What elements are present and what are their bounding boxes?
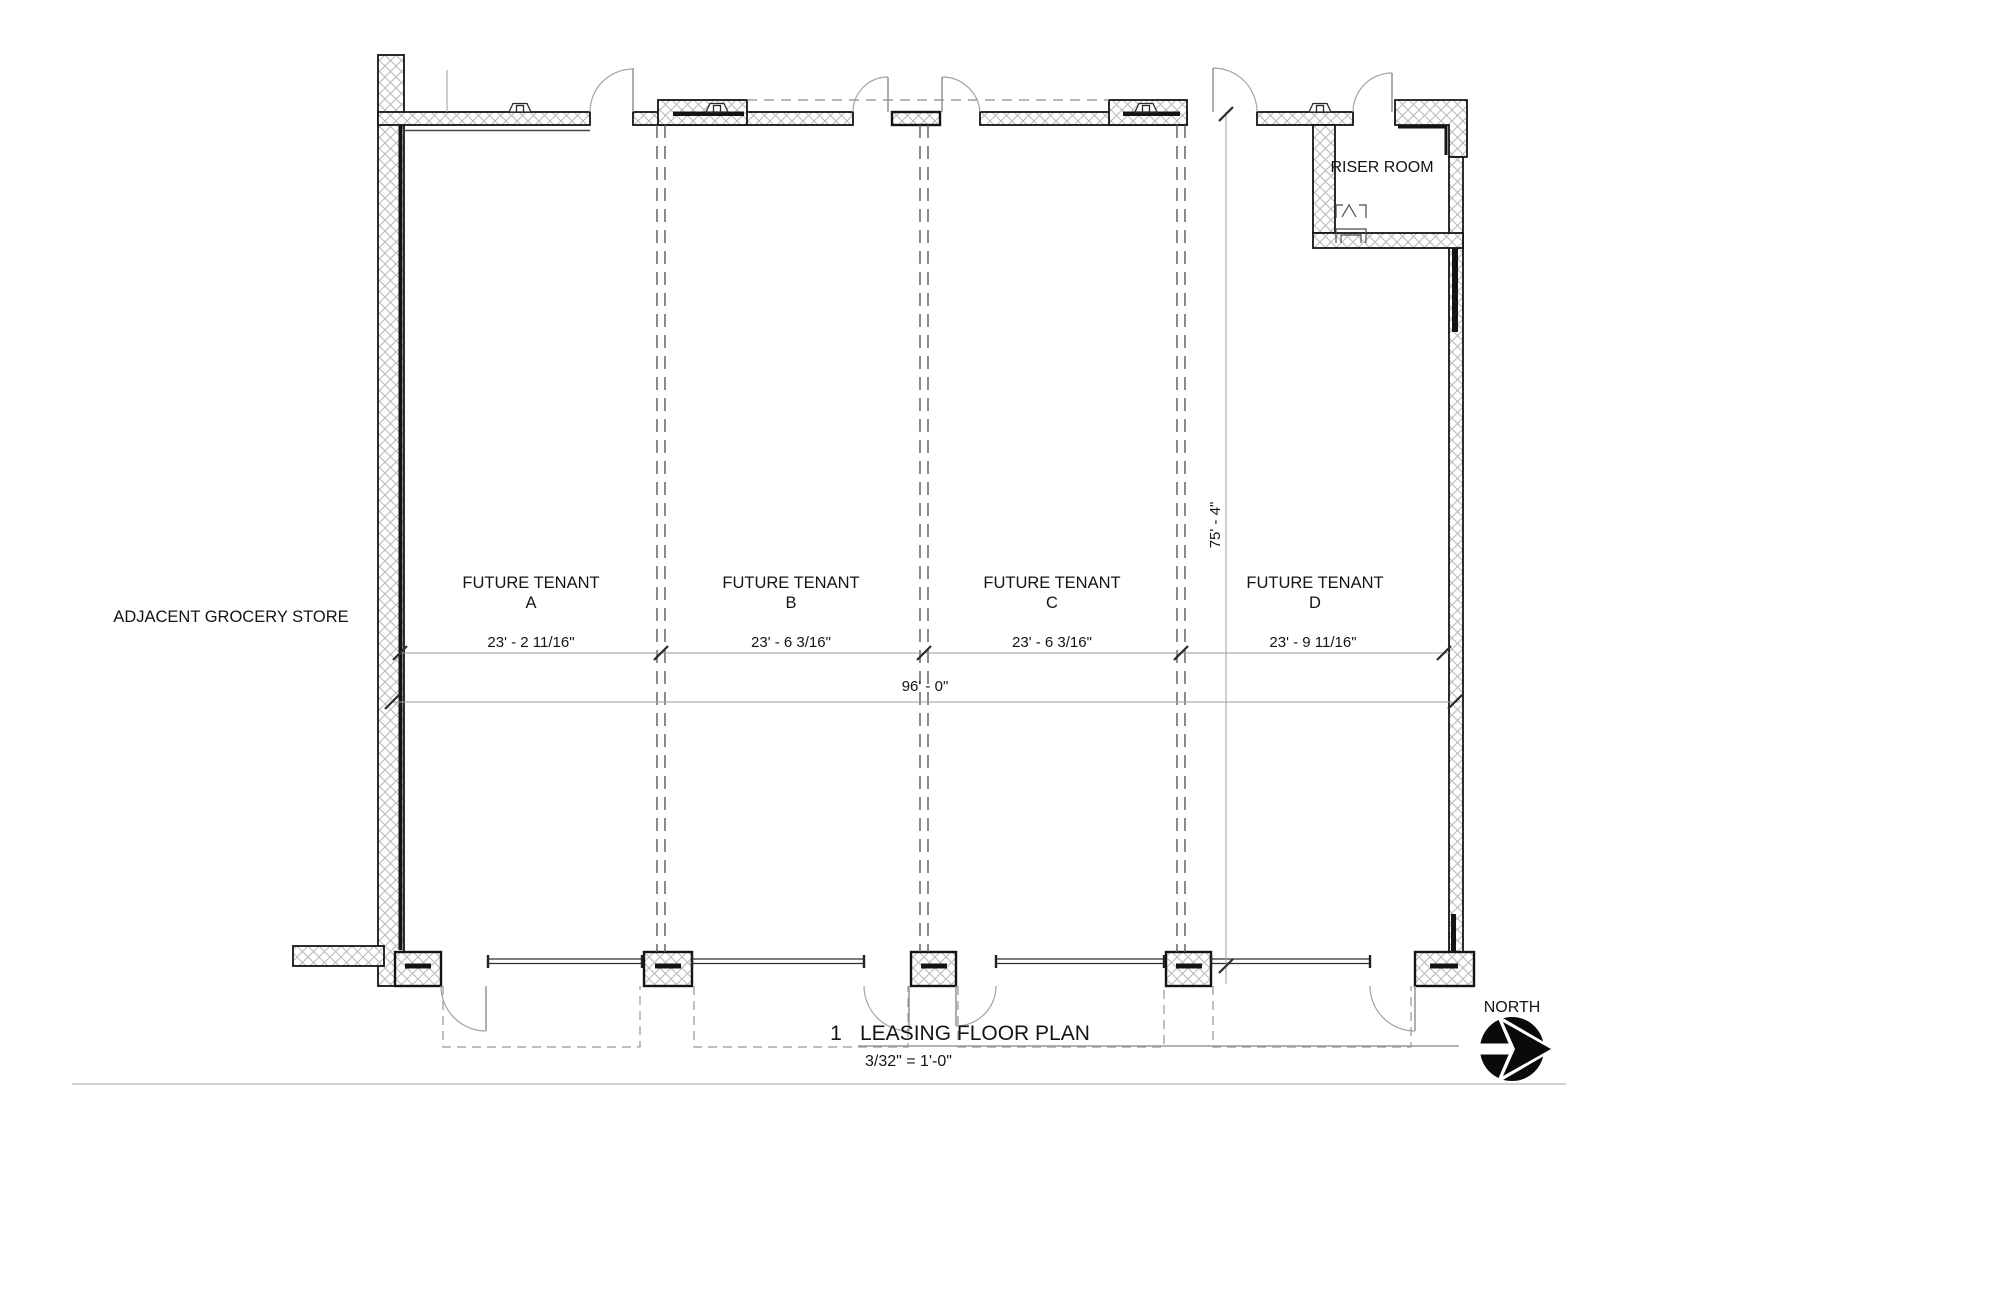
view-title: LEASING FLOOR PLAN	[860, 1022, 1090, 1045]
north-label: NORTH	[1484, 999, 1541, 1016]
storefront-pier-1	[395, 952, 441, 986]
exit-fixture-d-inner	[1317, 106, 1324, 113]
tenant-c-width-dim: 23' - 6 3/16"	[1012, 634, 1092, 651]
exit-fixture-b-inner	[714, 106, 721, 113]
glazing-bay-a-caps	[488, 955, 642, 968]
detail-number: 1	[830, 1022, 842, 1045]
drawing-sheet: 23' - 2 11/16" 23' - 6 3/16" 23' - 6 3/1…	[0, 0, 2000, 1294]
glazing-bay-b	[692, 959, 864, 964]
pier-4-header-bar	[1176, 964, 1202, 969]
tenant-a-width-dim: 23' - 2 11/16"	[487, 634, 574, 651]
dimensions: 23' - 2 11/16" 23' - 6 3/16" 23' - 6 3/1…	[385, 107, 1462, 984]
rear-door-b-swing	[853, 77, 888, 112]
exit-fixture-c-inner	[1143, 106, 1150, 113]
top-wall-segment-d	[1257, 112, 1353, 125]
tenant-d-width-dim: 23' - 9 11/16"	[1269, 634, 1356, 651]
top-wall-center-pier	[892, 112, 940, 125]
demising-walls	[657, 100, 1185, 952]
glazing-bay-b-caps	[692, 955, 864, 968]
bottom-right-corner-block	[1415, 952, 1474, 986]
entry-door-c-swing	[956, 986, 996, 1026]
riser-corner-inner-line	[1398, 127, 1446, 155]
riser-room-label: RISER ROOM	[1330, 159, 1433, 176]
north-arrow: NORTH	[1477, 999, 1556, 1084]
glazing-bay-d-caps	[1211, 955, 1370, 968]
tenant-d-letter: D	[1309, 594, 1321, 612]
walls	[293, 55, 1474, 986]
tenant-c-label: FUTURE TENANT	[983, 574, 1120, 592]
left-wall-inner-face	[399, 118, 403, 950]
tenant-c-letter: C	[1046, 594, 1058, 612]
tenant-b-letter: B	[785, 594, 796, 612]
riser-equipment-bracket-icon	[1336, 205, 1366, 218]
tenant-d-label: FUTURE TENANT	[1246, 574, 1383, 592]
canopy-bay-a	[443, 986, 640, 1047]
storefront-pier-4	[1166, 952, 1211, 986]
storefront-pier-3	[911, 952, 956, 986]
glazing-bay-a	[488, 959, 642, 964]
glazing-bay-c-caps	[996, 955, 1164, 968]
exit-fixture-a-inner	[517, 106, 524, 113]
storefront-pier-2	[644, 952, 692, 986]
riser-room-left-wall	[1313, 125, 1335, 233]
tenant-a-letter: A	[525, 594, 536, 612]
rear-door-c-swing	[942, 77, 980, 112]
labels: ADJACENT GROCERY STORE FUTURE TENANT A F…	[113, 159, 1433, 626]
tenant-b-label: FUTURE TENANT	[722, 574, 859, 592]
leasing-floor-plan-drawing: 23' - 2 11/16" 23' - 6 3/16" 23' - 6 3/1…	[0, 0, 2000, 1294]
glazing-bay-d	[1211, 959, 1370, 964]
adjacent-grocery-label: ADJACENT GROCERY STORE	[113, 608, 348, 626]
entry-door-a-swing	[441, 986, 486, 1031]
riser-room-door-swing	[1353, 73, 1392, 112]
rear-door-a-swing	[590, 69, 633, 112]
entry-door-d-swing	[1370, 986, 1415, 1031]
title-block: 1 LEASING FLOOR PLAN 3/32" = 1'-0"	[72, 1022, 1566, 1084]
tenant-b-width-dim: 23' - 6 3/16"	[751, 634, 831, 651]
corner-door-header-bar	[1430, 964, 1458, 969]
right-wall-inner-heavy	[1451, 914, 1456, 952]
scale-label: 3/32" = 1'-0"	[865, 1053, 952, 1070]
glazing-bay-c	[996, 959, 1164, 964]
rear-door-d-swing	[1213, 68, 1257, 112]
north-arrow-icon	[1477, 1014, 1556, 1084]
pier-1-header-bar	[405, 964, 431, 969]
overall-width-dim: 96' - 0"	[902, 678, 949, 695]
right-wall-heavy-face	[1452, 248, 1458, 332]
overall-depth-dim: 75' - 4"	[1207, 502, 1224, 549]
grocery-wall-stub	[293, 946, 384, 966]
pier-3-header-bar	[921, 964, 947, 969]
top-wall-segment-a	[378, 112, 590, 125]
tenant-a-label: FUTURE TENANT	[462, 574, 599, 592]
pier-2-header-bar	[655, 964, 681, 969]
riser-equipment-valve-icon	[1342, 205, 1356, 217]
